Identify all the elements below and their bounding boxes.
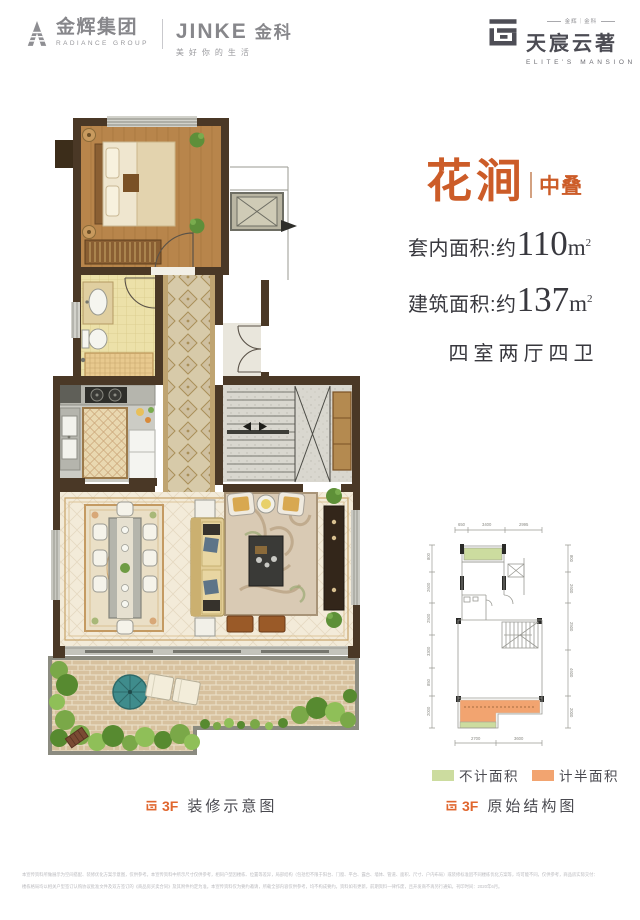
svg-text:850: 850 <box>426 678 431 686</box>
structure-schematic: 650 3400 2995 800 2600 2500 3300 850 200… <box>420 500 625 758</box>
estate-name-en: ELITE'S MANSION <box>526 59 636 66</box>
terrace-garden <box>49 658 357 753</box>
disclaimer: 本宣传资料所做展示为空间搭配、装修优化方案示意图，仅供参考。本宣传资料中所示尺寸… <box>22 869 620 893</box>
unit-tag-divider <box>530 172 532 198</box>
great-room <box>59 488 354 646</box>
patio-umbrella <box>113 675 147 709</box>
svg-text:650: 650 <box>458 522 466 527</box>
floor-label: 3F <box>162 798 178 814</box>
dining-area <box>85 502 163 634</box>
poster: 金辉集团 RADIANCE GROUP JINKE 金科 美好你的生活 <box>0 0 640 920</box>
disclaimer-line2: 楼栋格局均以相关户型签订认购协议批准文件及双方签订的《商品房买卖合同》及其附件约… <box>22 881 620 893</box>
unit-type-tag: 中叠 <box>539 170 583 200</box>
legend-item-excluded: 不计面积 <box>432 765 519 785</box>
inner-area-line: 套内面积:约110m2 <box>408 224 634 264</box>
svg-text:2500: 2500 <box>426 613 431 623</box>
floor-label: 3F <box>462 798 478 814</box>
header-right-logo: 金辉｜金科 天宸云著 ELITE'S MANSION <box>488 17 636 66</box>
svg-text:2600: 2600 <box>426 582 431 592</box>
armchairs <box>227 492 305 517</box>
svg-text:2600: 2600 <box>569 584 574 594</box>
tv-console <box>324 488 344 628</box>
radiance-group-icon <box>25 18 49 53</box>
logo-divider <box>162 19 163 49</box>
svg-text:4600: 4600 <box>569 668 574 678</box>
patio-window-wall <box>60 646 350 655</box>
bedroom <box>80 125 222 271</box>
cloud-icon-small <box>146 800 157 811</box>
svg-text:2500: 2500 <box>569 622 574 632</box>
svg-text:3300: 3300 <box>426 646 431 656</box>
sink <box>89 289 107 315</box>
cloud-icon-small <box>446 800 457 811</box>
coffee-table <box>249 536 283 586</box>
svg-text:2000: 2000 <box>426 706 431 716</box>
toilet <box>82 329 107 349</box>
area-legend: 不计面积 计半面积 <box>432 765 619 785</box>
header-left-logos: 金辉集团 RADIANCE GROUP JINKE 金科 美好你的生活 <box>25 18 293 58</box>
room-count: 四室两厅四卫 <box>408 337 634 366</box>
estate-cloud-icon <box>488 17 518 52</box>
caption-text: 装修示意图 <box>187 795 277 816</box>
half-area-zone <box>460 700 540 722</box>
jinke-brand: JINKE <box>176 22 248 42</box>
fridge <box>129 430 155 482</box>
svg-text:3400: 3400 <box>482 522 492 527</box>
unit-name: 花涧 <box>426 156 526 208</box>
wardrobe <box>85 240 161 264</box>
stove <box>85 387 127 403</box>
svg-text:800: 800 <box>569 555 574 563</box>
entry <box>223 323 261 383</box>
schematic-plan <box>456 544 544 728</box>
excluded-area-zone <box>460 722 496 728</box>
svg-text:800: 800 <box>426 552 431 560</box>
elevator <box>230 167 297 280</box>
build-area-line: 建筑面积:约137m2 <box>408 280 634 320</box>
caption-structure-plan: 3F 原始结构图 <box>446 795 577 816</box>
jinke-tagline: 美好你的生活 <box>176 47 293 58</box>
radiance-group-name: 金辉集团 <box>56 18 149 38</box>
svg-text:2700: 2700 <box>471 736 481 741</box>
jinke-brand-cn: 金科 <box>255 18 293 43</box>
kitchen <box>60 385 155 482</box>
sofa <box>191 500 224 636</box>
kitchen-rug <box>83 408 127 478</box>
radiance-group-name-en: RADIANCE GROUP <box>56 40 149 47</box>
estate-brand-small: 金辉｜金科 <box>526 17 636 25</box>
svg-text:3600: 3600 <box>514 736 524 741</box>
estate-name: 天宸云著 <box>526 27 636 56</box>
legend-swatch-green <box>432 770 454 781</box>
bathroom <box>81 275 155 380</box>
caption-text: 原始结构图 <box>487 795 577 816</box>
schematic-piers <box>456 544 544 702</box>
shower-area <box>81 353 153 379</box>
caption-decorated-plan: 3F 装修示意图 <box>146 795 277 816</box>
stairs <box>223 385 352 482</box>
stair-cabinet <box>333 392 351 470</box>
unit-info: 花涧 中叠 套内面积:约110m2 建筑面积:约137m2 四室两厅四卫 <box>408 156 634 366</box>
svg-text:2995: 2995 <box>519 522 529 527</box>
legend-item-half: 计半面积 <box>532 765 619 785</box>
disclaimer-line1: 本宣传资料所做展示为空间搭配、装修优化方案示意图，仅供参考。本宣传资料中所示尺寸… <box>22 869 620 881</box>
legend-swatch-orange <box>532 770 554 781</box>
decorated-floorplan <box>45 90 365 766</box>
svg-text:2000: 2000 <box>569 708 574 718</box>
corridor <box>163 275 215 492</box>
bed <box>95 142 175 226</box>
